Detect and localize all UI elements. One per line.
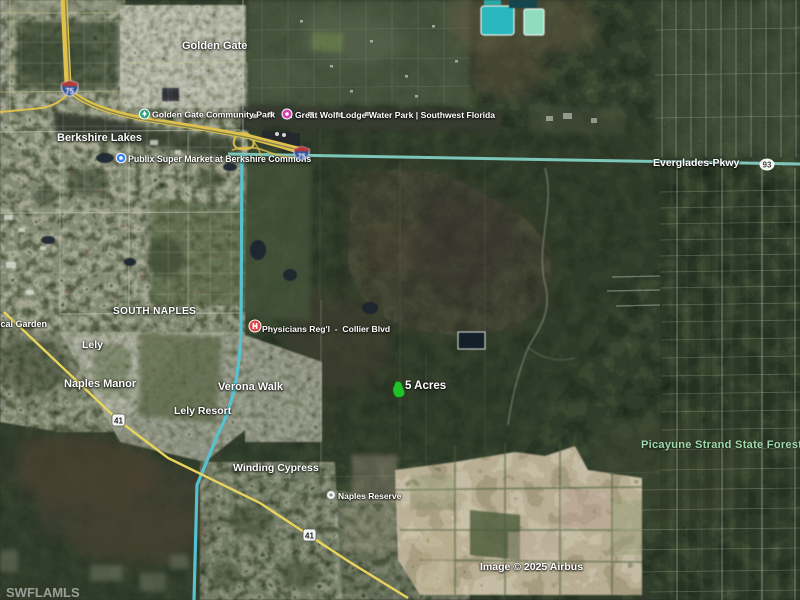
svg-text:75: 75: [298, 151, 306, 160]
svg-text:41: 41: [305, 532, 314, 541]
svg-text:Everglades-Pkwy: Everglades-Pkwy: [653, 157, 740, 169]
svg-text:75: 75: [65, 87, 74, 96]
svg-text:Image © 2025 Airbus: Image © 2025 Airbus: [480, 561, 583, 573]
svg-text:Lely Resort: Lely Resort: [174, 405, 232, 417]
svg-text:Picayune Strand State Forest: Picayune Strand State Forest: [641, 439, 800, 451]
svg-text:41: 41: [114, 417, 123, 426]
svg-text:SOUTH NAPLES: SOUTH NAPLES: [113, 306, 196, 317]
svg-text:Berkshire Lakes: Berkshire Lakes: [57, 132, 142, 144]
svg-text:5 Acres: 5 Acres: [405, 380, 446, 392]
svg-text:SWFLAMLS: SWFLAMLS: [6, 585, 80, 600]
svg-text:Naples Manor: Naples Manor: [64, 378, 137, 390]
svg-text:Verona Walk: Verona Walk: [218, 381, 284, 393]
svg-text:Publix Super Market at Berkshi: Publix Super Market at Berkshire Commons: [128, 154, 311, 164]
svg-text:Golden Gate: Golden Gate: [182, 40, 247, 52]
svg-text:Golden Gate Community Park: Golden Gate Community Park: [152, 110, 275, 120]
svg-text:93: 93: [763, 161, 772, 170]
svg-text:Great Wolf Lodge Water Park |: Great Wolf Lodge Water Park | Southwest …: [295, 110, 495, 120]
svg-text:ical Garden: ical Garden: [0, 319, 47, 329]
svg-text:Winding Cypress: Winding Cypress: [233, 462, 319, 474]
svg-text:Naples Reserve: Naples Reserve: [338, 491, 402, 501]
svg-text:Physicians Reg'l - Collier B: Physicians Reg'l - Collier Blvd: [262, 324, 390, 334]
svg-text:Lely: Lely: [82, 339, 103, 351]
